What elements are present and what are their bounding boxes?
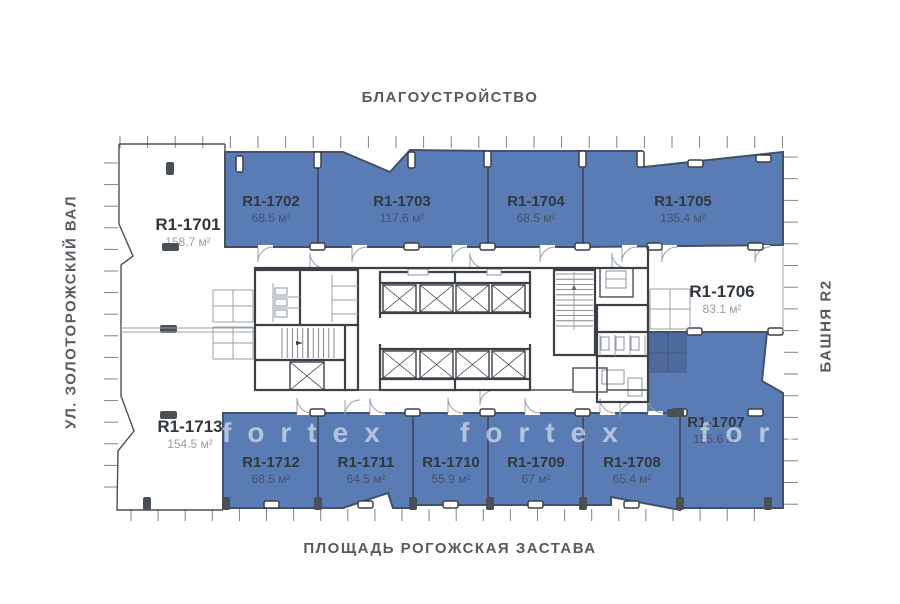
unit-id-label: R1-1708: [603, 454, 661, 471]
watermark-text: fortex: [222, 417, 396, 448]
unit-id-label: R1-1710: [422, 454, 480, 471]
unit-area-label: 68.5 м²: [252, 211, 291, 225]
unit-area-label: 68.5 м²: [517, 211, 556, 225]
core-stairwell-right: [554, 270, 595, 355]
r1-1707-utility-patch: [649, 333, 687, 373]
label-tower-r2: БАШНЯ R2: [818, 279, 835, 372]
unit-R1-1703[interactable]: R1-1703117.6 м²: [318, 150, 488, 247]
unit-area-label: 83.1 м²: [703, 302, 742, 316]
unit-id-label: R1-1712: [242, 454, 300, 471]
unit-id-label: R1-1713: [157, 417, 222, 436]
unit-id-label: R1-1706: [689, 282, 754, 301]
unit-id-label: R1-1709: [507, 454, 565, 471]
unit-id-label: R1-1705: [654, 193, 712, 210]
unit-id-label: R1-1704: [507, 193, 565, 210]
unit-R1-1704[interactable]: R1-170468.5 м²: [488, 151, 583, 247]
unit-area-label: 117.6 м²: [380, 211, 425, 225]
unit-id-label: R1-1702: [242, 193, 300, 210]
floor-plan-page: БЛАГОУСТРОЙСТВО ПЛОЩАДЬ РОГОЖСКАЯ ЗАСТАВ…: [0, 0, 900, 604]
unit-id-label: R1-1701: [155, 215, 220, 234]
label-zolotorozhsky-val: УЛ. ЗОЛОТОРОЖСКИЙ ВАЛ: [63, 195, 80, 429]
unit-id-label: R1-1711: [338, 454, 395, 471]
watermark-text: fortex: [700, 417, 874, 448]
core-elevator-bank: [378, 269, 532, 390]
label-landscaping: БЛАГОУСТРОЙСТВО: [0, 89, 900, 106]
core-left-block: [255, 270, 358, 390]
unit-area-label: 65.4 м²: [613, 472, 652, 486]
label-rogozhskaya-square: ПЛОЩАДЬ РОГОЖСКАЯ ЗАСТАВА: [0, 540, 900, 557]
unit-R1-1713: R1-1713154.5 м²: [157, 417, 222, 451]
unit-area-label: 55.9 м²: [432, 472, 471, 486]
watermark-layer: fortexfortexfortex: [222, 417, 874, 448]
unit-area-label: 154.5 м²: [167, 437, 213, 451]
unit-area-label: 68.5 м²: [252, 472, 291, 486]
unit-id-label: R1-1703: [373, 193, 431, 210]
unit-area-label: 135.4 м²: [660, 211, 706, 225]
unit-R1-1705[interactable]: R1-1705135.4 м²: [583, 151, 783, 247]
core-wc-block: [573, 268, 648, 402]
unit-R1-1706: R1-170683.1 м²: [689, 282, 754, 316]
stair-treads: [282, 274, 593, 358]
watermark-text: fortex: [460, 417, 634, 448]
elevator-shafts: [290, 285, 525, 390]
unit-area-label: 67 м²: [522, 472, 551, 486]
unit-area-label: 64.5 м²: [347, 472, 386, 486]
